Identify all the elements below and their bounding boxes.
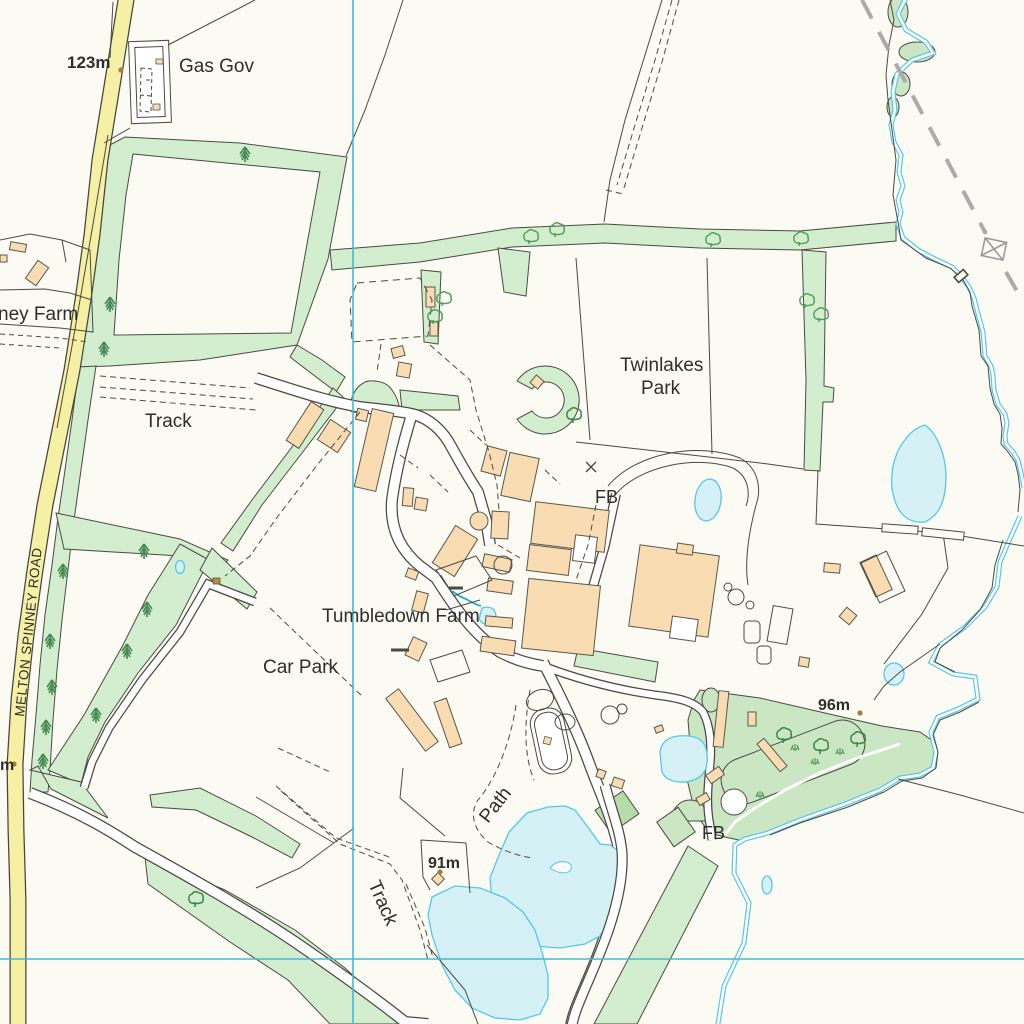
svg-text:96m: 96m: [818, 697, 850, 714]
svg-text:Twinlakes: Twinlakes: [620, 355, 703, 376]
svg-text:Tumbledown Farm: Tumbledown Farm: [322, 606, 480, 627]
svg-text:m: m: [0, 757, 14, 774]
svg-text:Gas Gov: Gas Gov: [179, 56, 254, 77]
svg-text:Car Park: Car Park: [263, 657, 338, 678]
svg-text:ney Farm: ney Farm: [0, 304, 78, 325]
svg-text:91m: 91m: [428, 855, 460, 872]
svg-text:Track: Track: [145, 411, 192, 432]
svg-text:FB: FB: [595, 487, 618, 507]
svg-text:123m: 123m: [67, 53, 110, 72]
svg-text:Park: Park: [641, 378, 681, 399]
svg-text:FB: FB: [702, 823, 725, 843]
